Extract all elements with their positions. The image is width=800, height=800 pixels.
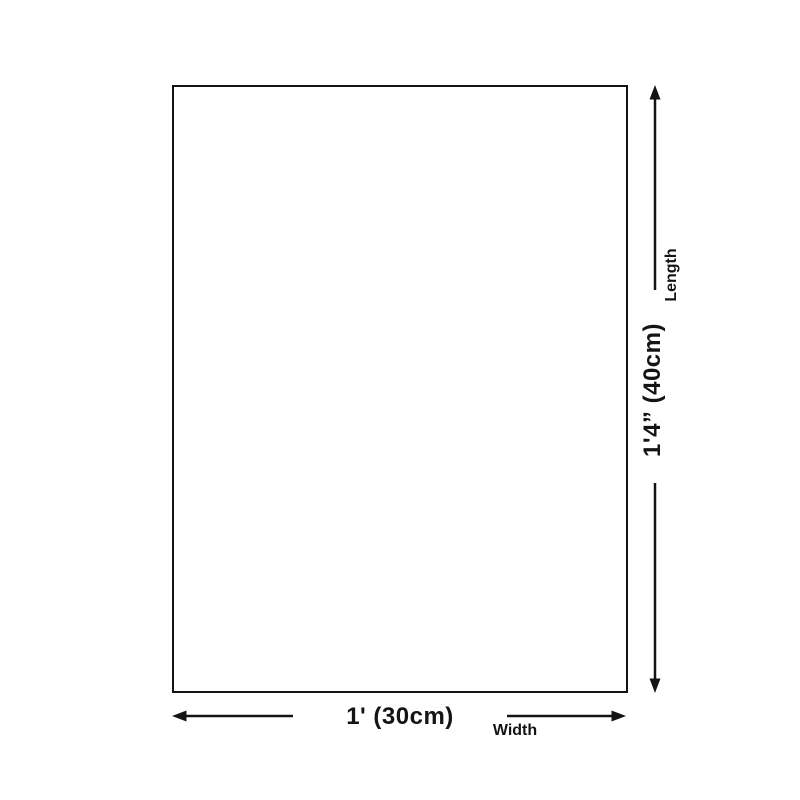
length-arrow-up-icon	[650, 85, 661, 290]
width-arrow-left-icon	[172, 711, 293, 722]
width-arrow-right-icon	[507, 711, 626, 722]
product-dimension-diagram: { "diagram": { "length": { "value": "1'4…	[0, 0, 800, 800]
length-dimension-value: 1'4” (40cm)	[639, 323, 667, 457]
width-dimension-value: 1' (30cm)	[346, 703, 454, 731]
length-axis-label: Length	[663, 248, 681, 301]
length-arrow-down-icon	[650, 483, 661, 693]
width-axis-label: Width	[493, 722, 537, 740]
product-outline	[172, 85, 628, 693]
diagram-canvas: 1'4” (40cm) Length 1' (30cm) Width	[0, 0, 800, 800]
